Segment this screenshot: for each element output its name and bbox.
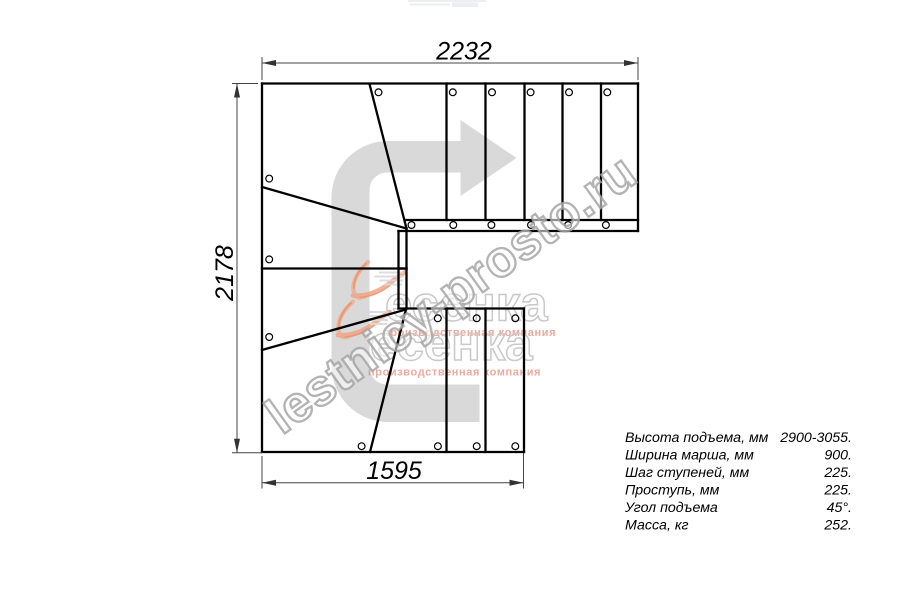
svg-text:1595: 1595 [366,457,422,485]
svg-text:Масса, кг: Масса, кг [625,518,689,534]
svg-text:Ширина марша, мм: Ширина марша, мм [625,448,754,464]
svg-text:Угол подъема: Угол подъема [624,500,718,516]
svg-text:Шаг ступеней, мм: Шаг ступеней, мм [625,465,749,481]
svg-text:225.: 225. [823,483,852,499]
svg-text:225.: 225. [823,465,852,481]
svg-text:900.: 900. [824,448,852,464]
svg-text:2900-3055.: 2900-3055. [779,430,852,446]
svg-text:252.: 252. [823,518,852,534]
svg-text:2232: 2232 [435,38,492,66]
svg-text:Проступь, мм: Проступь, мм [625,483,720,499]
svg-text:2178: 2178 [211,245,239,302]
svg-text:Высота подъема, мм: Высота подъема, мм [625,430,769,446]
svg-text:45°.: 45°. [827,500,852,516]
